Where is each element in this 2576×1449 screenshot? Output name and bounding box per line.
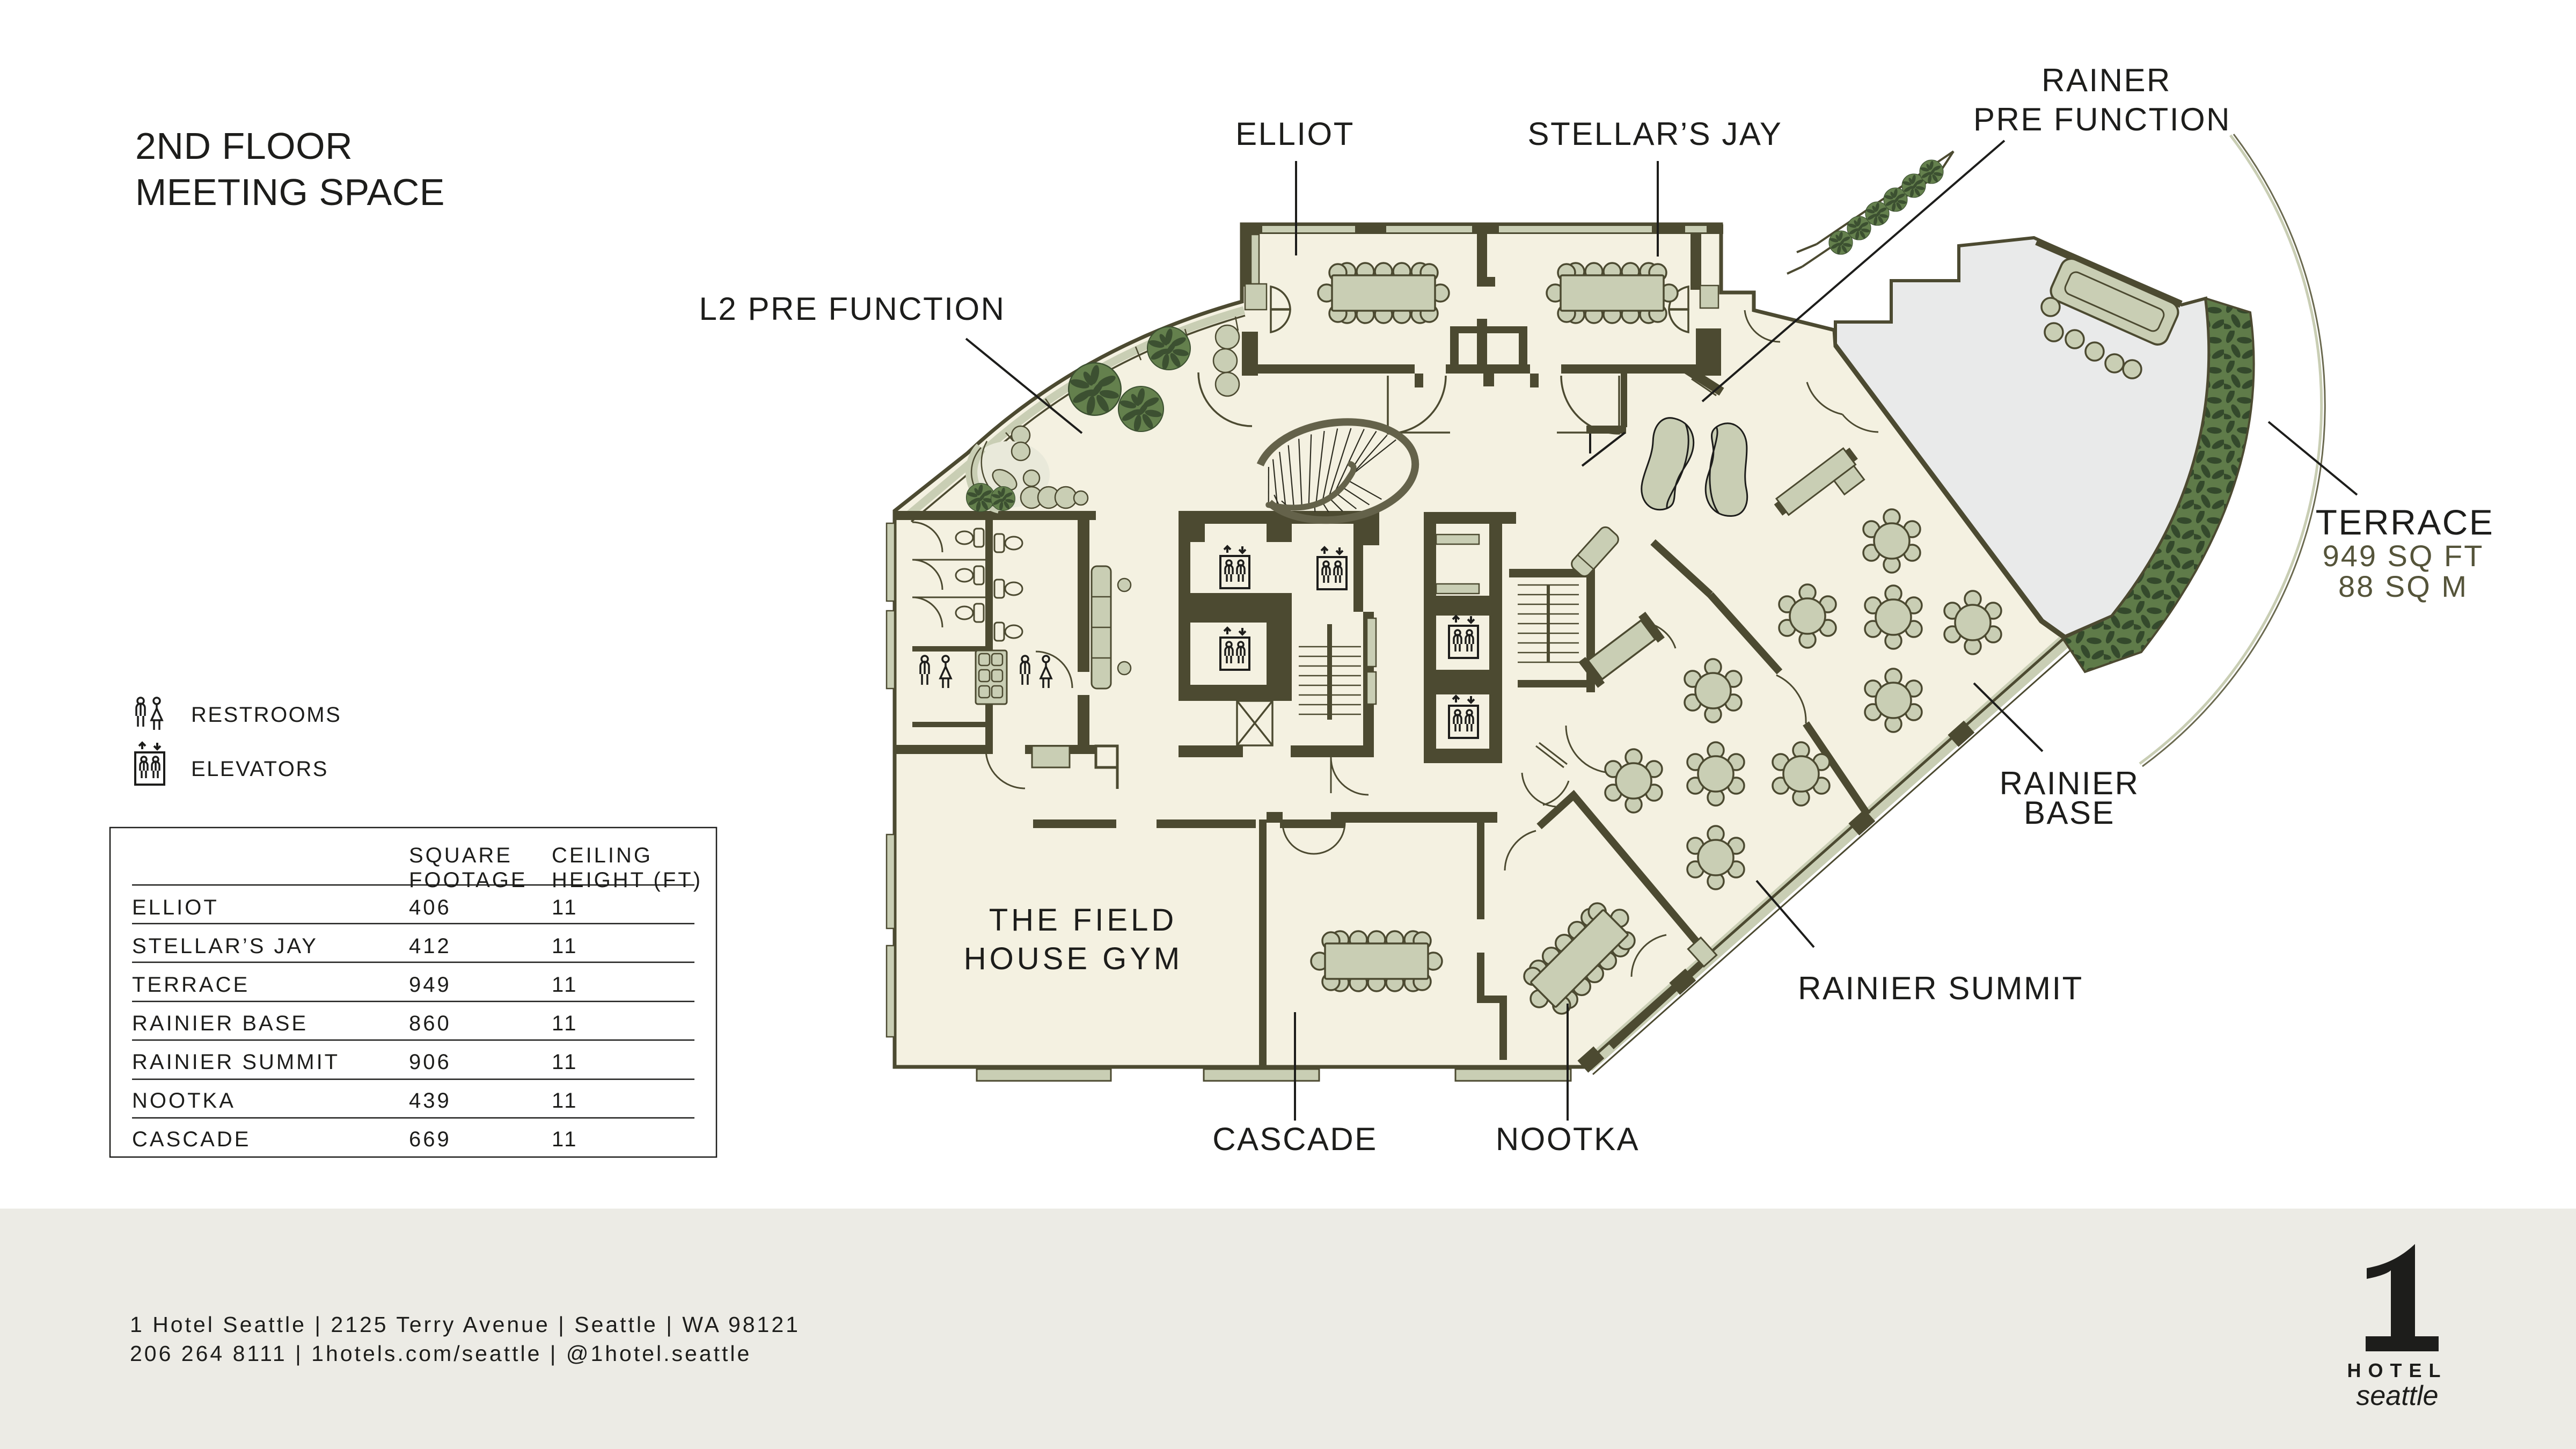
svg-text:seattle: seattle (2356, 1380, 2438, 1411)
svg-text:2ND FLOOR: 2ND FLOOR (135, 125, 353, 167)
svg-text:THE FIELD: THE FIELD (989, 903, 1177, 938)
svg-text:88 SQ M: 88 SQ M (2338, 569, 2468, 603)
svg-text:HEIGHT (FT): HEIGHT (FT) (552, 868, 702, 892)
svg-text:439: 439 (409, 1089, 451, 1113)
svg-text:MEETING SPACE: MEETING SPACE (135, 171, 445, 213)
svg-text:TERRACE: TERRACE (132, 973, 250, 997)
svg-text:HOUSE GYM: HOUSE GYM (964, 941, 1183, 976)
svg-text:STELLAR’S JAY: STELLAR’S JAY (1528, 116, 1783, 152)
svg-text:11: 11 (552, 1089, 579, 1113)
svg-text:11: 11 (552, 934, 579, 958)
svg-text:RESTROOMS: RESTROOMS (191, 703, 341, 727)
svg-text:ELLIOT: ELLIOT (1235, 116, 1355, 152)
svg-text:TERRACE: TERRACE (2316, 502, 2494, 542)
svg-text:RAINIER BASE: RAINIER BASE (132, 1012, 308, 1035)
svg-text:ELLIOT: ELLIOT (132, 896, 219, 919)
svg-text:11: 11 (552, 973, 579, 997)
svg-text:949: 949 (409, 973, 451, 997)
svg-text:RAINER: RAINER (2041, 62, 2171, 98)
svg-text:RAINIER SUMMIT: RAINIER SUMMIT (1798, 970, 2083, 1006)
svg-text:PRE FUNCTION: PRE FUNCTION (1973, 101, 2231, 137)
svg-text:NOOTKA: NOOTKA (132, 1089, 236, 1113)
svg-text:906: 906 (409, 1050, 451, 1074)
svg-text:860: 860 (409, 1012, 451, 1035)
svg-text:11: 11 (552, 1050, 579, 1074)
svg-text:CASCADE: CASCADE (132, 1128, 251, 1151)
svg-text:11: 11 (552, 1012, 579, 1035)
svg-text:L2 PRE FUNCTION: L2 PRE FUNCTION (699, 291, 1006, 327)
svg-text:CEILING: CEILING (552, 844, 653, 867)
svg-text:HOTEL: HOTEL (2347, 1359, 2448, 1381)
svg-text:669: 669 (409, 1128, 451, 1151)
svg-text:949 SQ FT: 949 SQ FT (2323, 539, 2484, 573)
svg-text:FOOTAGE: FOOTAGE (409, 868, 528, 892)
svg-text:BASE: BASE (2024, 795, 2115, 831)
svg-text:412: 412 (409, 934, 451, 958)
svg-text:NOOTKA: NOOTKA (1496, 1121, 1640, 1157)
svg-text:406: 406 (409, 896, 451, 919)
svg-text:1 Hotel Seattle | 2125 Terry A: 1 Hotel Seattle | 2125 Terry Avenue | Se… (130, 1312, 800, 1337)
svg-text:CASCADE: CASCADE (1212, 1121, 1378, 1157)
svg-text:ELEVATORS: ELEVATORS (191, 757, 328, 781)
svg-text:206 264 8111 | 1hotels.com/sea: 206 264 8111 | 1hotels.com/seattle | @1h… (130, 1341, 751, 1366)
svg-text:11: 11 (552, 1128, 579, 1151)
svg-text:SQUARE: SQUARE (409, 844, 513, 867)
svg-text:11: 11 (552, 896, 579, 919)
svg-text:STELLAR’S JAY: STELLAR’S JAY (132, 934, 318, 958)
svg-text:RAINIER SUMMIT: RAINIER SUMMIT (132, 1050, 340, 1074)
